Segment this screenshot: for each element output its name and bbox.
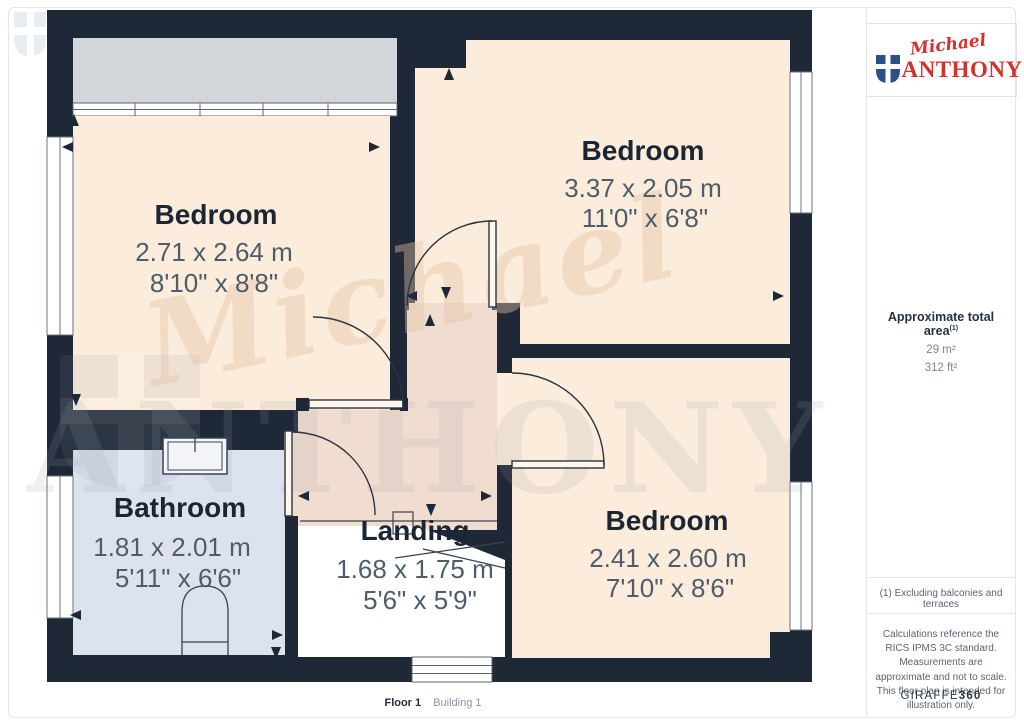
room-dim-imperial: 5'11" x 6'6" xyxy=(115,563,241,593)
bay-area xyxy=(73,38,397,103)
sidebar-divider xyxy=(867,577,1015,578)
room-label: Bedroom xyxy=(582,135,705,166)
sidebar-separator xyxy=(866,8,867,716)
corner-shield-watermark-icon xyxy=(14,12,46,58)
total-area-imperial: 312 ft² xyxy=(874,362,1008,374)
room-dim-metric: 1.68 x 1.75 m xyxy=(336,554,494,584)
total-area-superscript: (1) xyxy=(950,325,959,332)
room-dim-metric: 2.41 x 2.60 m xyxy=(589,543,747,573)
giraffe360-suffix: 360 xyxy=(959,690,982,702)
floorplan-page: Michael ANTHONY xyxy=(0,0,1024,725)
giraffe360-name: GIRAFFE xyxy=(900,690,958,702)
brand-script-text: Michael xyxy=(909,30,987,59)
brand-shield-icon xyxy=(876,55,900,83)
room-label: Bathroom xyxy=(114,492,246,523)
building-label: Building 1 xyxy=(433,697,481,709)
floorplan-drawing: Michael ANTHONY xyxy=(0,0,1024,725)
room-dim-imperial: 7'10" x 8'6" xyxy=(606,573,734,603)
room-label: Bedroom xyxy=(155,199,278,230)
room-dim-imperial: 5'6" x 5'9" xyxy=(363,585,477,615)
plan-footer: Floor 1 Building 1 xyxy=(0,697,866,709)
total-area-block: Approximate total area(1) 29 m² 312 ft² xyxy=(874,310,1008,374)
floor-label: Floor 1 xyxy=(384,697,421,709)
room-label: Bedroom xyxy=(606,505,729,536)
stairs-exit xyxy=(412,657,492,682)
window xyxy=(73,103,397,116)
agency-logo: Michael ANTHONY xyxy=(866,23,1017,97)
brand-caps-text: ANTHONY xyxy=(902,57,1023,83)
room-dim-imperial: 8'10" x 8'8" xyxy=(150,268,278,298)
giraffe360-brand: GIRAFFE360 xyxy=(866,690,1016,702)
bedroom-2-floor xyxy=(466,40,790,70)
total-area-title: Approximate total area(1) xyxy=(874,310,1008,338)
total-area-title-text: Approximate total area xyxy=(888,310,994,338)
room-dim-metric: 2.71 x 2.64 m xyxy=(135,237,293,267)
room-dim-metric: 3.37 x 2.05 m xyxy=(564,173,722,203)
bedroom-3-floor xyxy=(512,632,770,658)
room-dim-metric: 1.81 x 2.01 m xyxy=(93,532,251,562)
sidebar-divider xyxy=(867,613,1015,614)
room-dim-imperial: 11'0" x 6'8" xyxy=(582,203,708,233)
total-area-metric: 29 m² xyxy=(874,344,1008,356)
footnote: (1) Excluding balconies and terraces xyxy=(872,588,1010,610)
room-label: Landing xyxy=(361,515,470,546)
